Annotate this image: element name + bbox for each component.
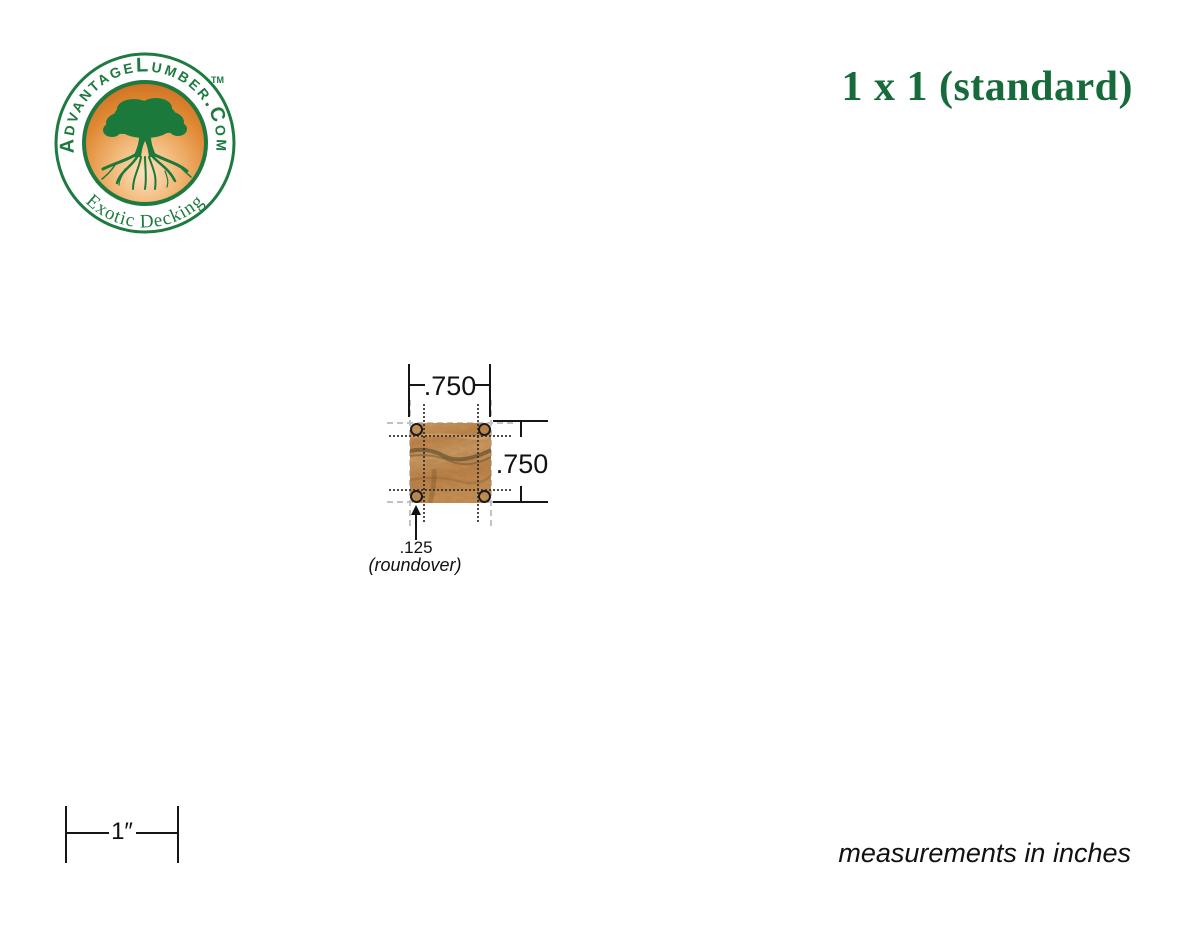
roundover-tangent-line-h-top [389, 435, 511, 437]
units-note: measurements in inches [838, 838, 1131, 869]
page-title: 1 x 1 (standard) [841, 63, 1133, 111]
page: AdvantageLumber.Com Exotic Decking TM 1 … [0, 0, 1200, 927]
height-dimension-label: .750 [482, 449, 562, 480]
width-dim-line-right [474, 384, 491, 386]
width-dimension-label: .750 [410, 371, 490, 402]
roundover-tangent-line-v-right [477, 404, 479, 522]
roundover-tangent-line-v-left [423, 404, 425, 522]
trademark-symbol: TM [211, 75, 224, 85]
roundover-circle-bottom-left [410, 490, 423, 503]
width-dim-tick-right [489, 364, 491, 417]
scale-tick-left [65, 806, 67, 863]
advantage-lumber-logo: AdvantageLumber.Com Exotic Decking TM [53, 51, 237, 235]
scale-label: 1″ [92, 818, 152, 846]
roundover-circle-bottom-right [478, 490, 491, 503]
scale-tick-right [177, 806, 179, 863]
width-dim-tick-left [408, 364, 410, 417]
roundover-tangent-line-h-bottom [389, 489, 511, 491]
width-dim-line-left [408, 384, 425, 386]
roundover-caption-label: (roundover) [365, 555, 465, 576]
roundover-circle-top-left [410, 423, 423, 436]
roundover-arrow-shaft [415, 514, 417, 540]
roundover-arrow-icon [411, 505, 421, 515]
roundover-circle-top-right [478, 423, 491, 436]
height-dim-tick-top [520, 420, 522, 437]
height-dim-tick-bottom [520, 486, 522, 503]
